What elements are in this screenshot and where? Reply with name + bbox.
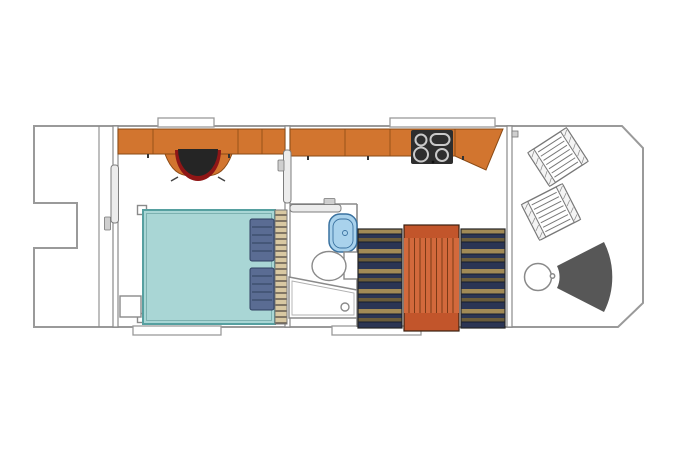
headboard-slats [275, 210, 287, 324]
dinette-bench [358, 229, 402, 328]
toilet-bowl [312, 252, 346, 281]
bathroom-sliding-door [290, 205, 341, 213]
bedroom-front-wall [113, 126, 118, 327]
window-top-bedroom [158, 118, 214, 127]
aft-cabin-wall [507, 126, 512, 327]
cabinet-handle [307, 156, 309, 160]
bedroom-pocket-door [111, 165, 119, 223]
cabinet-handle [462, 156, 464, 160]
shower-drain [341, 303, 349, 311]
cabinet-handle [367, 156, 369, 160]
cooktop-knob [432, 161, 435, 164]
galley-pocket-door [284, 150, 292, 203]
cabinet-handle [228, 154, 230, 158]
door-handle [324, 199, 335, 205]
dinette-bench [461, 229, 505, 328]
cabinet-handle [147, 154, 149, 158]
round-table-latch [550, 274, 554, 278]
round-table [525, 264, 552, 291]
houseboat-floor-plan [0, 0, 675, 450]
pillow [250, 268, 274, 310]
door-handle [278, 160, 284, 171]
window-top-galley [390, 118, 495, 127]
window-bottom-bedroom [133, 326, 221, 335]
pillow [250, 219, 274, 261]
door-handle [105, 217, 111, 230]
aft-door-latch [512, 131, 518, 137]
nightstand [120, 296, 141, 317]
